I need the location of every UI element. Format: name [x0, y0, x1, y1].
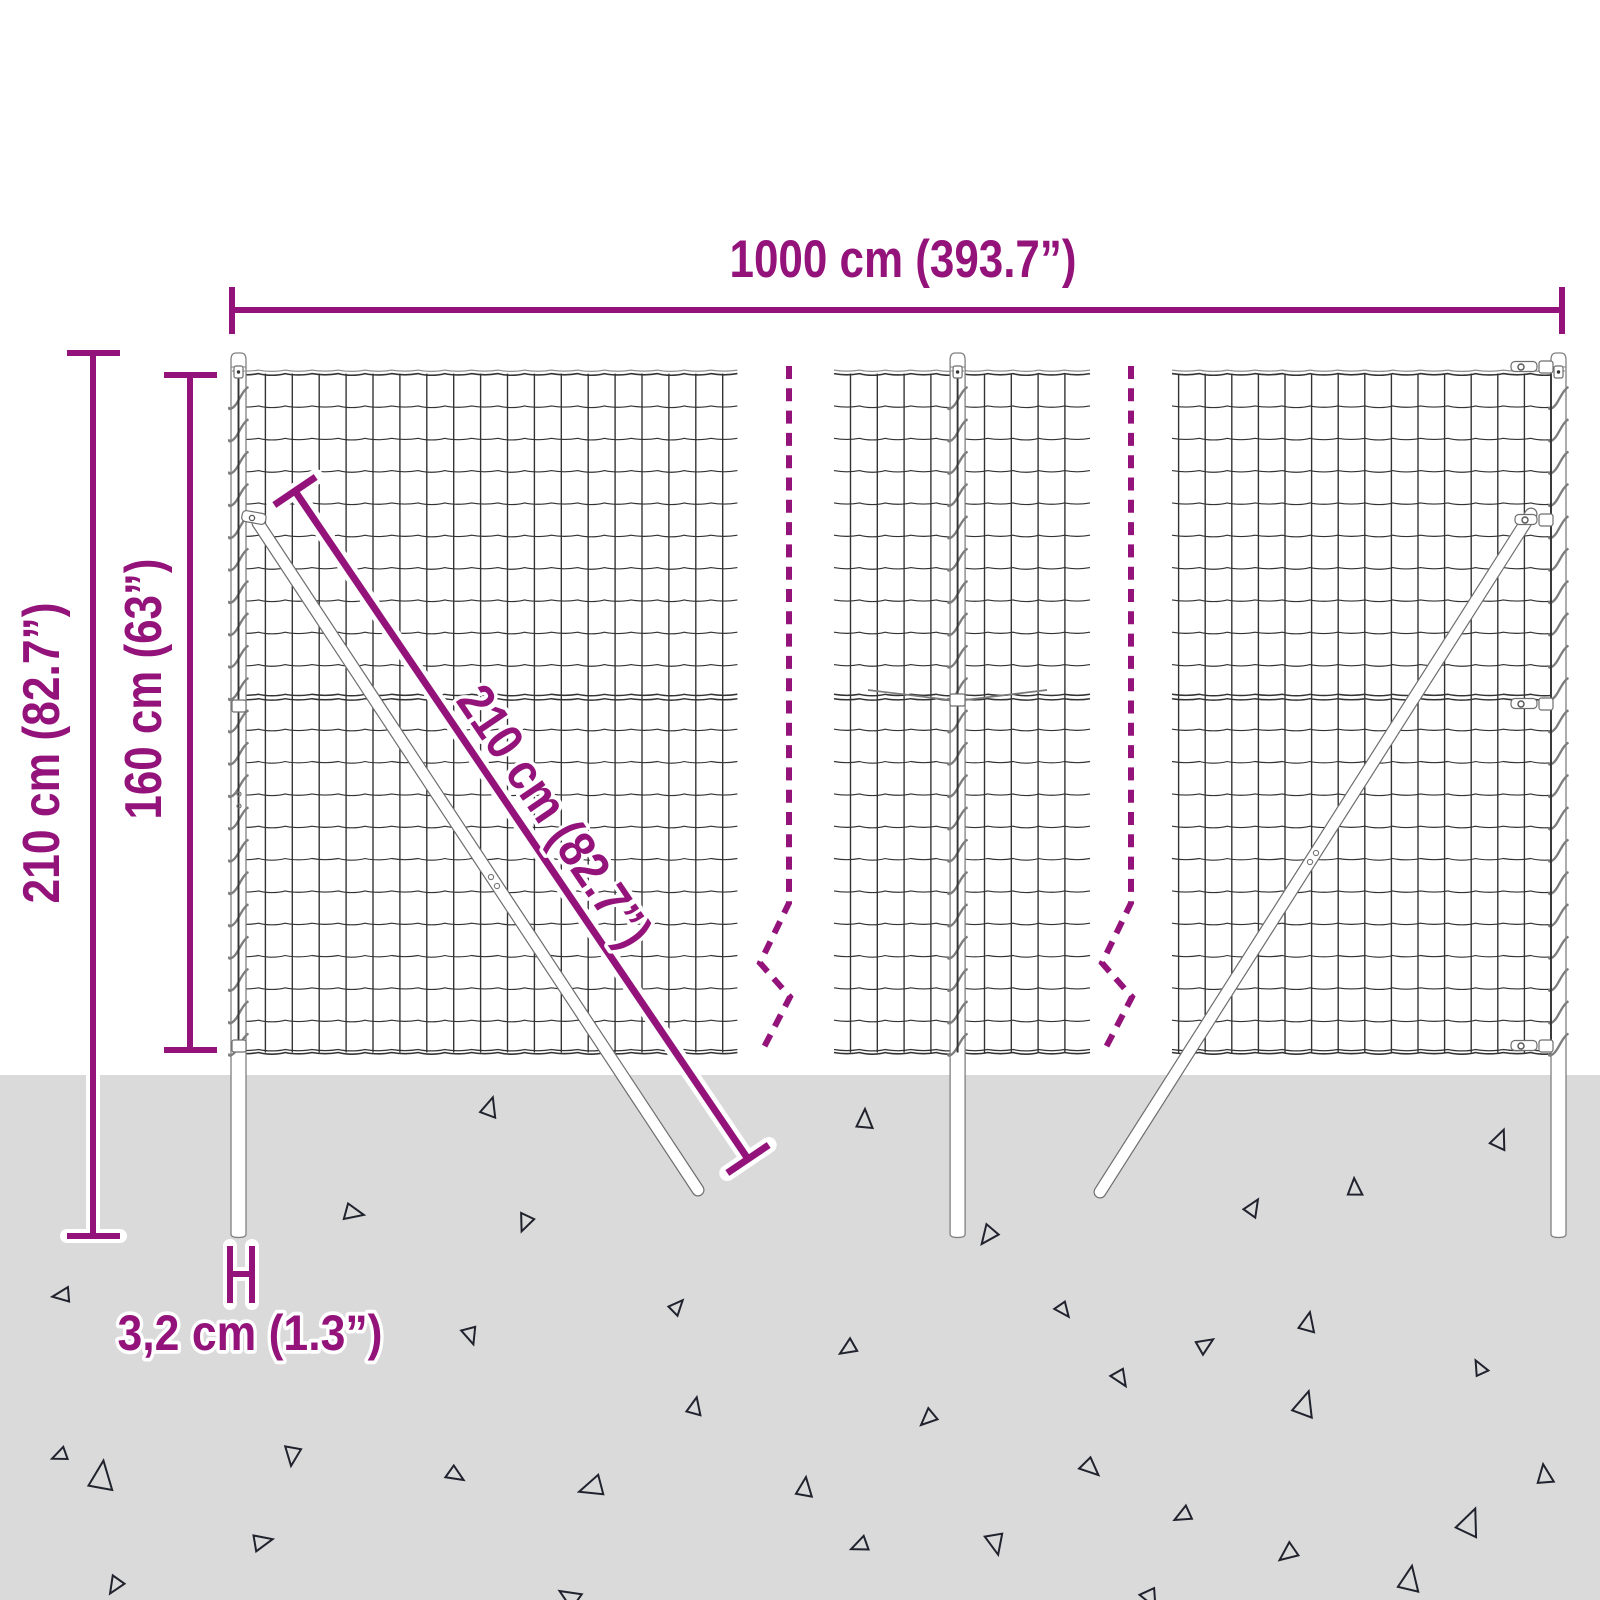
svg-text:3,2 cm (1.3”): 3,2 cm (1.3”) [118, 1305, 383, 1361]
svg-text:1000 cm (393.7”): 1000 cm (393.7”) [730, 230, 1077, 289]
svg-text:210 cm (82.7”): 210 cm (82.7”) [13, 603, 71, 904]
svg-text:160 cm (63”): 160 cm (63”) [115, 559, 173, 820]
